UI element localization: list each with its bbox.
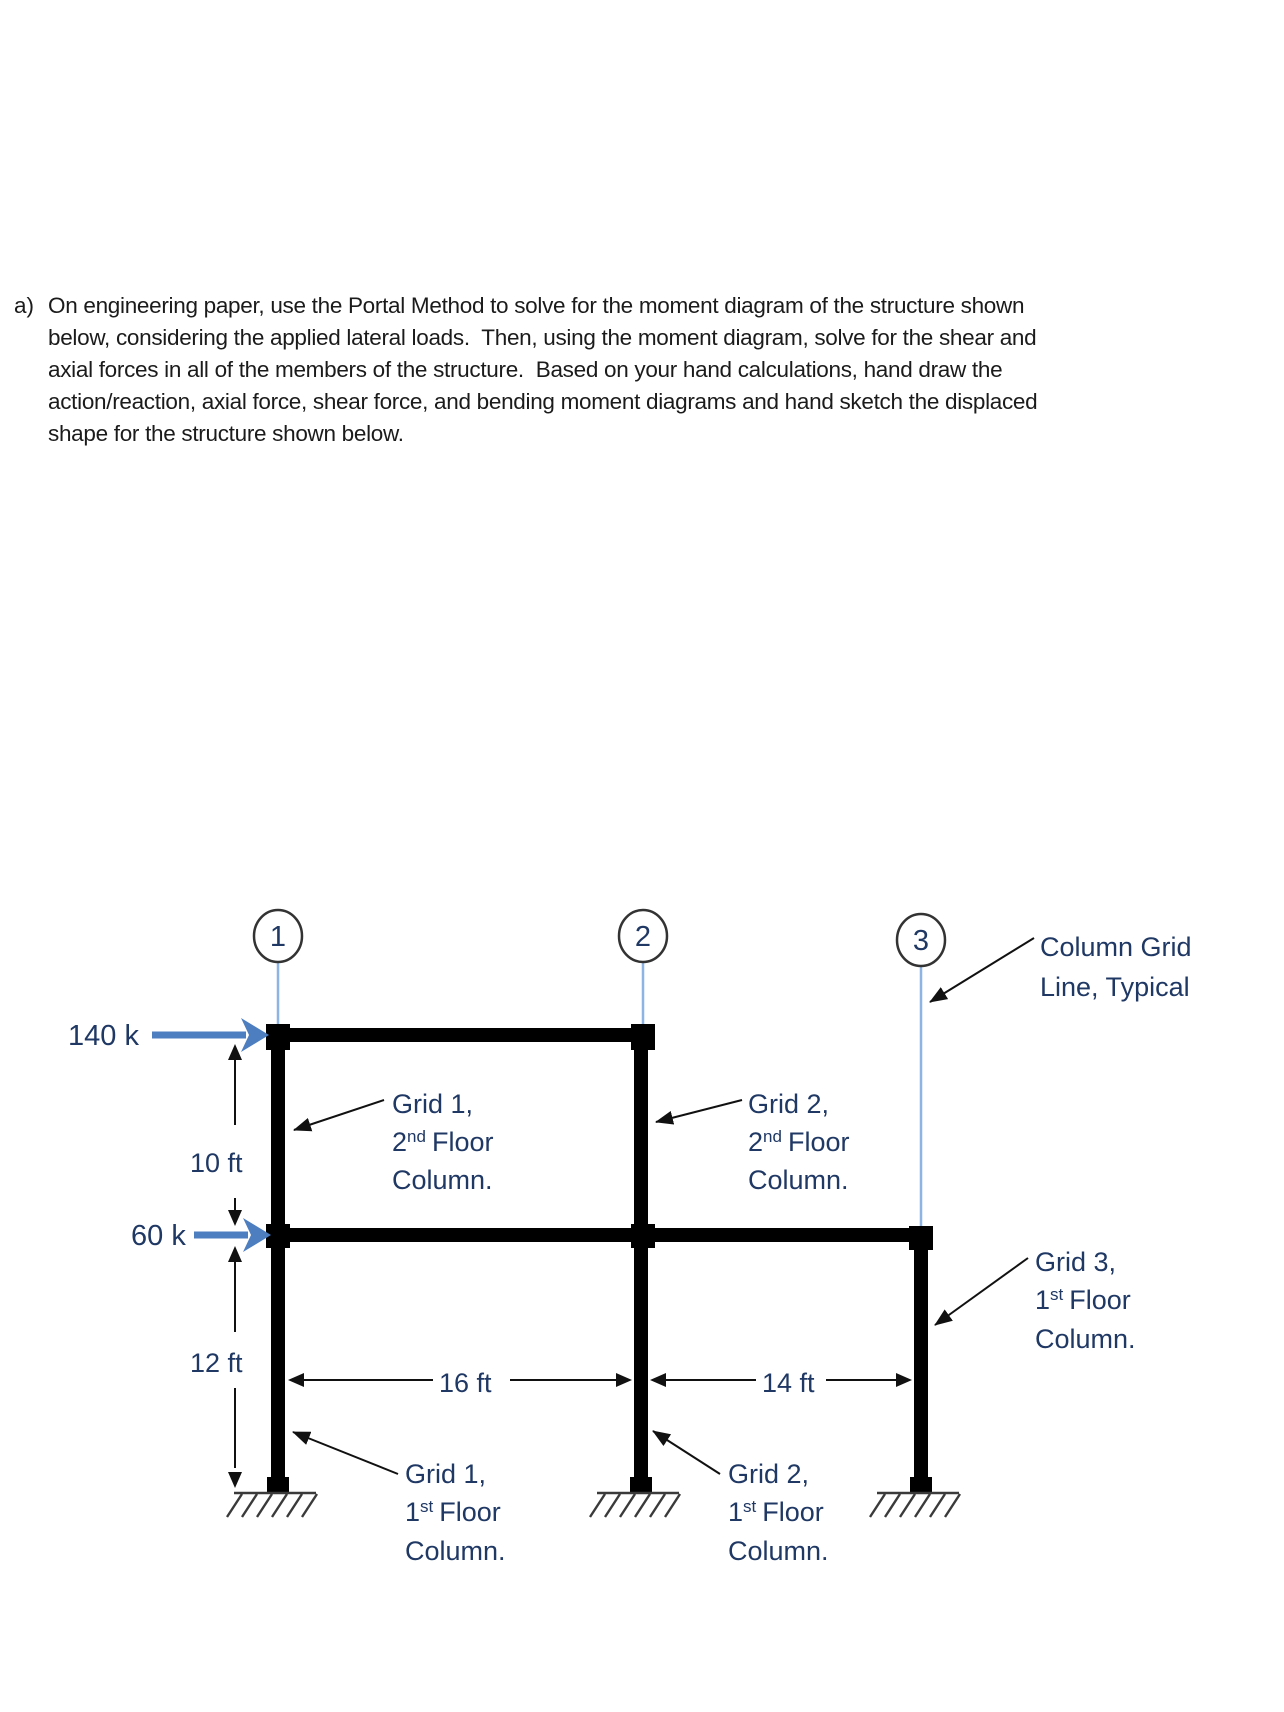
horizontal-dimensions (288, 1373, 912, 1387)
floor-word: Floor (762, 1497, 824, 1527)
load-60k-label: 60 k (131, 1220, 186, 1252)
annotations: Column Grid Line, Typical Grid 1, 2ndFlo… (392, 932, 1192, 1566)
grid2-column (634, 1028, 648, 1493)
grid3-column (914, 1228, 928, 1493)
grid-bubbles: 1 2 3 (254, 910, 945, 966)
label-column-grid-line-typical: Column Grid Line, Typical (1040, 932, 1192, 1002)
floor-word: Floor (432, 1127, 494, 1157)
label-grid1-1st-floor-column: Grid 1, 1stFloor Column. (405, 1459, 506, 1566)
leader-grid-line-typical (930, 938, 1034, 1002)
leader-grid2-2nd (656, 1100, 742, 1122)
label-line: Grid 3, (1035, 1247, 1116, 1277)
leader-grid2-1st (653, 1431, 720, 1474)
floor-ordinal-sup: st (420, 1497, 434, 1516)
label-line: Grid 2, (748, 1089, 829, 1119)
label-line: 2ndFloor (748, 1127, 849, 1157)
floor-word: Floor (439, 1497, 501, 1527)
vertical-dimensions (228, 1044, 242, 1488)
dim-arrow-right (616, 1373, 632, 1387)
label-grid2-2nd-floor-column: Grid 2, 2ndFloor Column. (748, 1089, 849, 1195)
floor-number: 1 (405, 1497, 420, 1527)
joint-floor-grid2 (631, 1224, 655, 1248)
label-line: 1stFloor (728, 1497, 824, 1527)
grid1-column (271, 1028, 285, 1493)
floor-number: 1 (1035, 1285, 1050, 1315)
grid-bubble-2-number: 2 (635, 921, 651, 953)
label-line: 2ndFloor (392, 1127, 493, 1157)
load-140k-label: 140 k (68, 1020, 139, 1052)
joint-roof-grid1 (266, 1024, 290, 1050)
portal-frame-diagram: 1 2 3 (0, 0, 1284, 1712)
joint-floor-grid1 (266, 1224, 290, 1248)
label-line: Column. (405, 1536, 506, 1566)
roof-beam (267, 1028, 651, 1042)
label-grid3-1st-floor-column: Grid 3, 1stFloor Column. (1035, 1247, 1136, 1354)
fixed-supports (227, 1493, 960, 1517)
support-grid2 (590, 1493, 680, 1517)
base-pedestal-grid1 (267, 1477, 289, 1493)
label-line: Grid 1, (392, 1089, 473, 1119)
label-line: 1stFloor (405, 1497, 501, 1527)
floor-ordinal-sup: st (1050, 1285, 1064, 1304)
dim-arrow-right (896, 1373, 912, 1387)
support-grid3 (870, 1493, 960, 1517)
floor-ordinal-sup: nd (763, 1127, 782, 1146)
dim-10ft-label: 10 ft (190, 1148, 243, 1178)
label-line: Column Grid (1040, 932, 1192, 962)
label-line: Column. (748, 1165, 849, 1195)
dim-12ft-label: 12 ft (190, 1348, 243, 1378)
joint-floor-grid3 (909, 1226, 933, 1250)
dim-16ft-label: 16 ft (439, 1368, 492, 1398)
dim-arrow-down (228, 1210, 242, 1226)
label-line: Grid 1, (405, 1459, 486, 1489)
grid-bubble-3-number: 3 (913, 925, 929, 957)
second-floor-beam (267, 1228, 931, 1242)
floor-ordinal-sup: st (743, 1497, 757, 1516)
dim-arrow-down (228, 1472, 242, 1488)
floor-ordinal-sup: nd (407, 1127, 426, 1146)
base-pedestal-grid2 (630, 1477, 652, 1493)
floor-word: Floor (1069, 1285, 1131, 1315)
leader-grid3-1st (935, 1258, 1028, 1325)
floor-word: Floor (788, 1127, 850, 1157)
label-line: Line, Typical (1040, 972, 1190, 1002)
dim-14ft-label: 14 ft (762, 1368, 815, 1398)
label-grid2-1st-floor-column: Grid 2, 1stFloor Column. (728, 1459, 829, 1566)
label-line: 1stFloor (1035, 1285, 1131, 1315)
base-pedestal-grid3 (910, 1477, 932, 1493)
grid-bubble-1-number: 1 (270, 921, 286, 953)
floor-number: 1 (728, 1497, 743, 1527)
label-line: Column. (1035, 1324, 1136, 1354)
label-grid1-2nd-floor-column: Grid 1, 2ndFloor Column. (392, 1089, 493, 1195)
floor-number: 2 (748, 1127, 763, 1157)
frame-members (266, 1024, 933, 1493)
joint-roof-grid2 (631, 1024, 655, 1050)
label-line: Grid 2, (728, 1459, 809, 1489)
label-line: Column. (728, 1536, 829, 1566)
label-line: Column. (392, 1165, 493, 1195)
lateral-loads: 140 k 60 k (68, 1018, 271, 1252)
leader-grid1-2nd (294, 1100, 384, 1130)
leader-grid1-1st (293, 1432, 398, 1474)
document-page: a) On engineering paper, use the Portal … (0, 0, 1284, 1712)
support-grid1 (227, 1493, 317, 1517)
floor-number: 2 (392, 1127, 407, 1157)
